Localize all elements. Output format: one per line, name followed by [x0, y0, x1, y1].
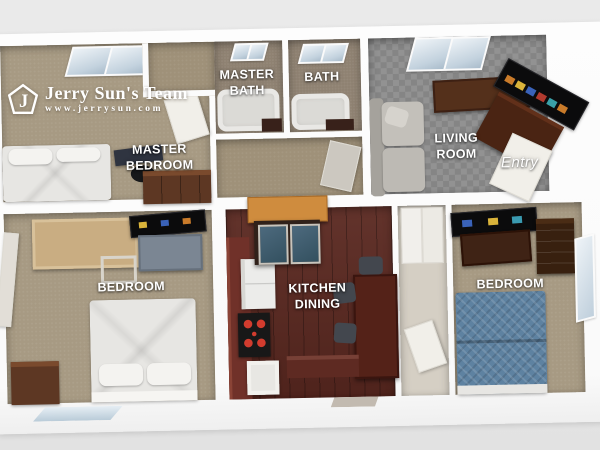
screen-art	[512, 216, 522, 224]
window-icon	[64, 45, 152, 77]
bed	[455, 291, 547, 395]
room-label-living-room: LIVING ROOM	[417, 130, 496, 163]
tv-thumbnail	[546, 98, 557, 108]
window-pane	[322, 45, 346, 62]
tv-thumbnail	[515, 80, 526, 90]
hall-closet-door	[320, 140, 361, 192]
tv-thumbnail	[536, 92, 547, 102]
window-icon	[33, 406, 123, 422]
room-label-bath: BATH	[304, 69, 339, 85]
hutch-glass	[290, 224, 321, 265]
room-label-master-bedroom: MASTER BEDROOM	[113, 141, 206, 174]
closet-door	[422, 207, 444, 263]
bed	[89, 298, 197, 402]
brand-text-block: Jerry Sun's Team www.jerrysun.com	[45, 84, 188, 115]
hall-door	[404, 320, 447, 373]
mattress-edge	[91, 390, 197, 402]
room-bath	[288, 39, 362, 132]
dining-table	[353, 274, 399, 379]
screen-art	[488, 218, 498, 226]
closet-door	[0, 232, 19, 327]
gaming-desk	[450, 207, 540, 267]
nightstand	[11, 361, 60, 405]
hutch-glass	[258, 224, 289, 265]
window-pane	[248, 45, 266, 59]
pillow	[147, 362, 191, 385]
counter-peninsula	[287, 355, 359, 379]
refrigerator	[241, 259, 276, 310]
room-label-kitchen-dining: KITCHEN DINING	[278, 280, 357, 313]
pillow	[56, 147, 100, 162]
pillow	[99, 363, 143, 386]
pillow	[8, 148, 52, 165]
room-label-bedroom-left: BEDROOM	[97, 279, 165, 296]
screen-art	[462, 220, 472, 228]
window-pane	[232, 45, 250, 59]
bath-vanity	[326, 119, 354, 131]
screen-art	[161, 220, 170, 227]
mattress-edge	[457, 384, 547, 395]
door-opening	[331, 396, 379, 407]
room-label-master-bath: MASTER BATH	[215, 67, 280, 100]
closet-door	[401, 207, 423, 263]
brand-name: Jerry Sun's Team	[45, 84, 188, 102]
dresser	[536, 218, 575, 274]
room-bedroom-left	[4, 210, 216, 404]
screen-art	[139, 222, 148, 229]
window-pane	[300, 45, 324, 62]
desk-body	[460, 229, 532, 266]
tv-thumbnail	[557, 104, 568, 114]
blanket-fold	[456, 339, 546, 344]
window-icon	[406, 36, 491, 72]
room-bedroom-right	[452, 202, 586, 395]
window-icon	[574, 233, 596, 322]
window-pane	[445, 38, 488, 69]
dining-chair	[334, 322, 357, 343]
stove	[238, 313, 271, 358]
bath-vanity	[262, 118, 282, 131]
hallway	[216, 137, 363, 198]
sink	[247, 360, 280, 395]
bed	[2, 144, 111, 202]
screen-art	[182, 218, 191, 225]
desk-body	[138, 234, 203, 271]
dresser	[143, 170, 212, 204]
brand-website: www.jerrysun.com	[45, 105, 188, 115]
gaming-desk	[130, 210, 207, 270]
window-pane	[408, 39, 451, 70]
brand-watermark: J Jerry Sun's Team www.jerrysun.com	[8, 84, 188, 115]
window-icon	[230, 43, 269, 62]
window-icon	[298, 43, 349, 64]
hall-closet	[398, 205, 450, 396]
room-label-bedroom-right: BEDROOM	[476, 276, 544, 293]
window-pane	[576, 236, 594, 320]
window-pane	[67, 48, 111, 75]
brand-pentagon-icon: J	[8, 84, 38, 114]
hutch-body	[254, 220, 321, 265]
brand-monogram: J	[19, 91, 28, 112]
dining-chair	[359, 256, 383, 274]
floorplan-render: MASTER BATH BATH MASTER BEDROOM LIVING R…	[0, 0, 600, 450]
china-hutch	[247, 195, 326, 265]
tv-thumbnail	[504, 75, 515, 85]
room-label-entry: Entry	[501, 154, 539, 174]
tv-thumbnail	[525, 86, 536, 96]
